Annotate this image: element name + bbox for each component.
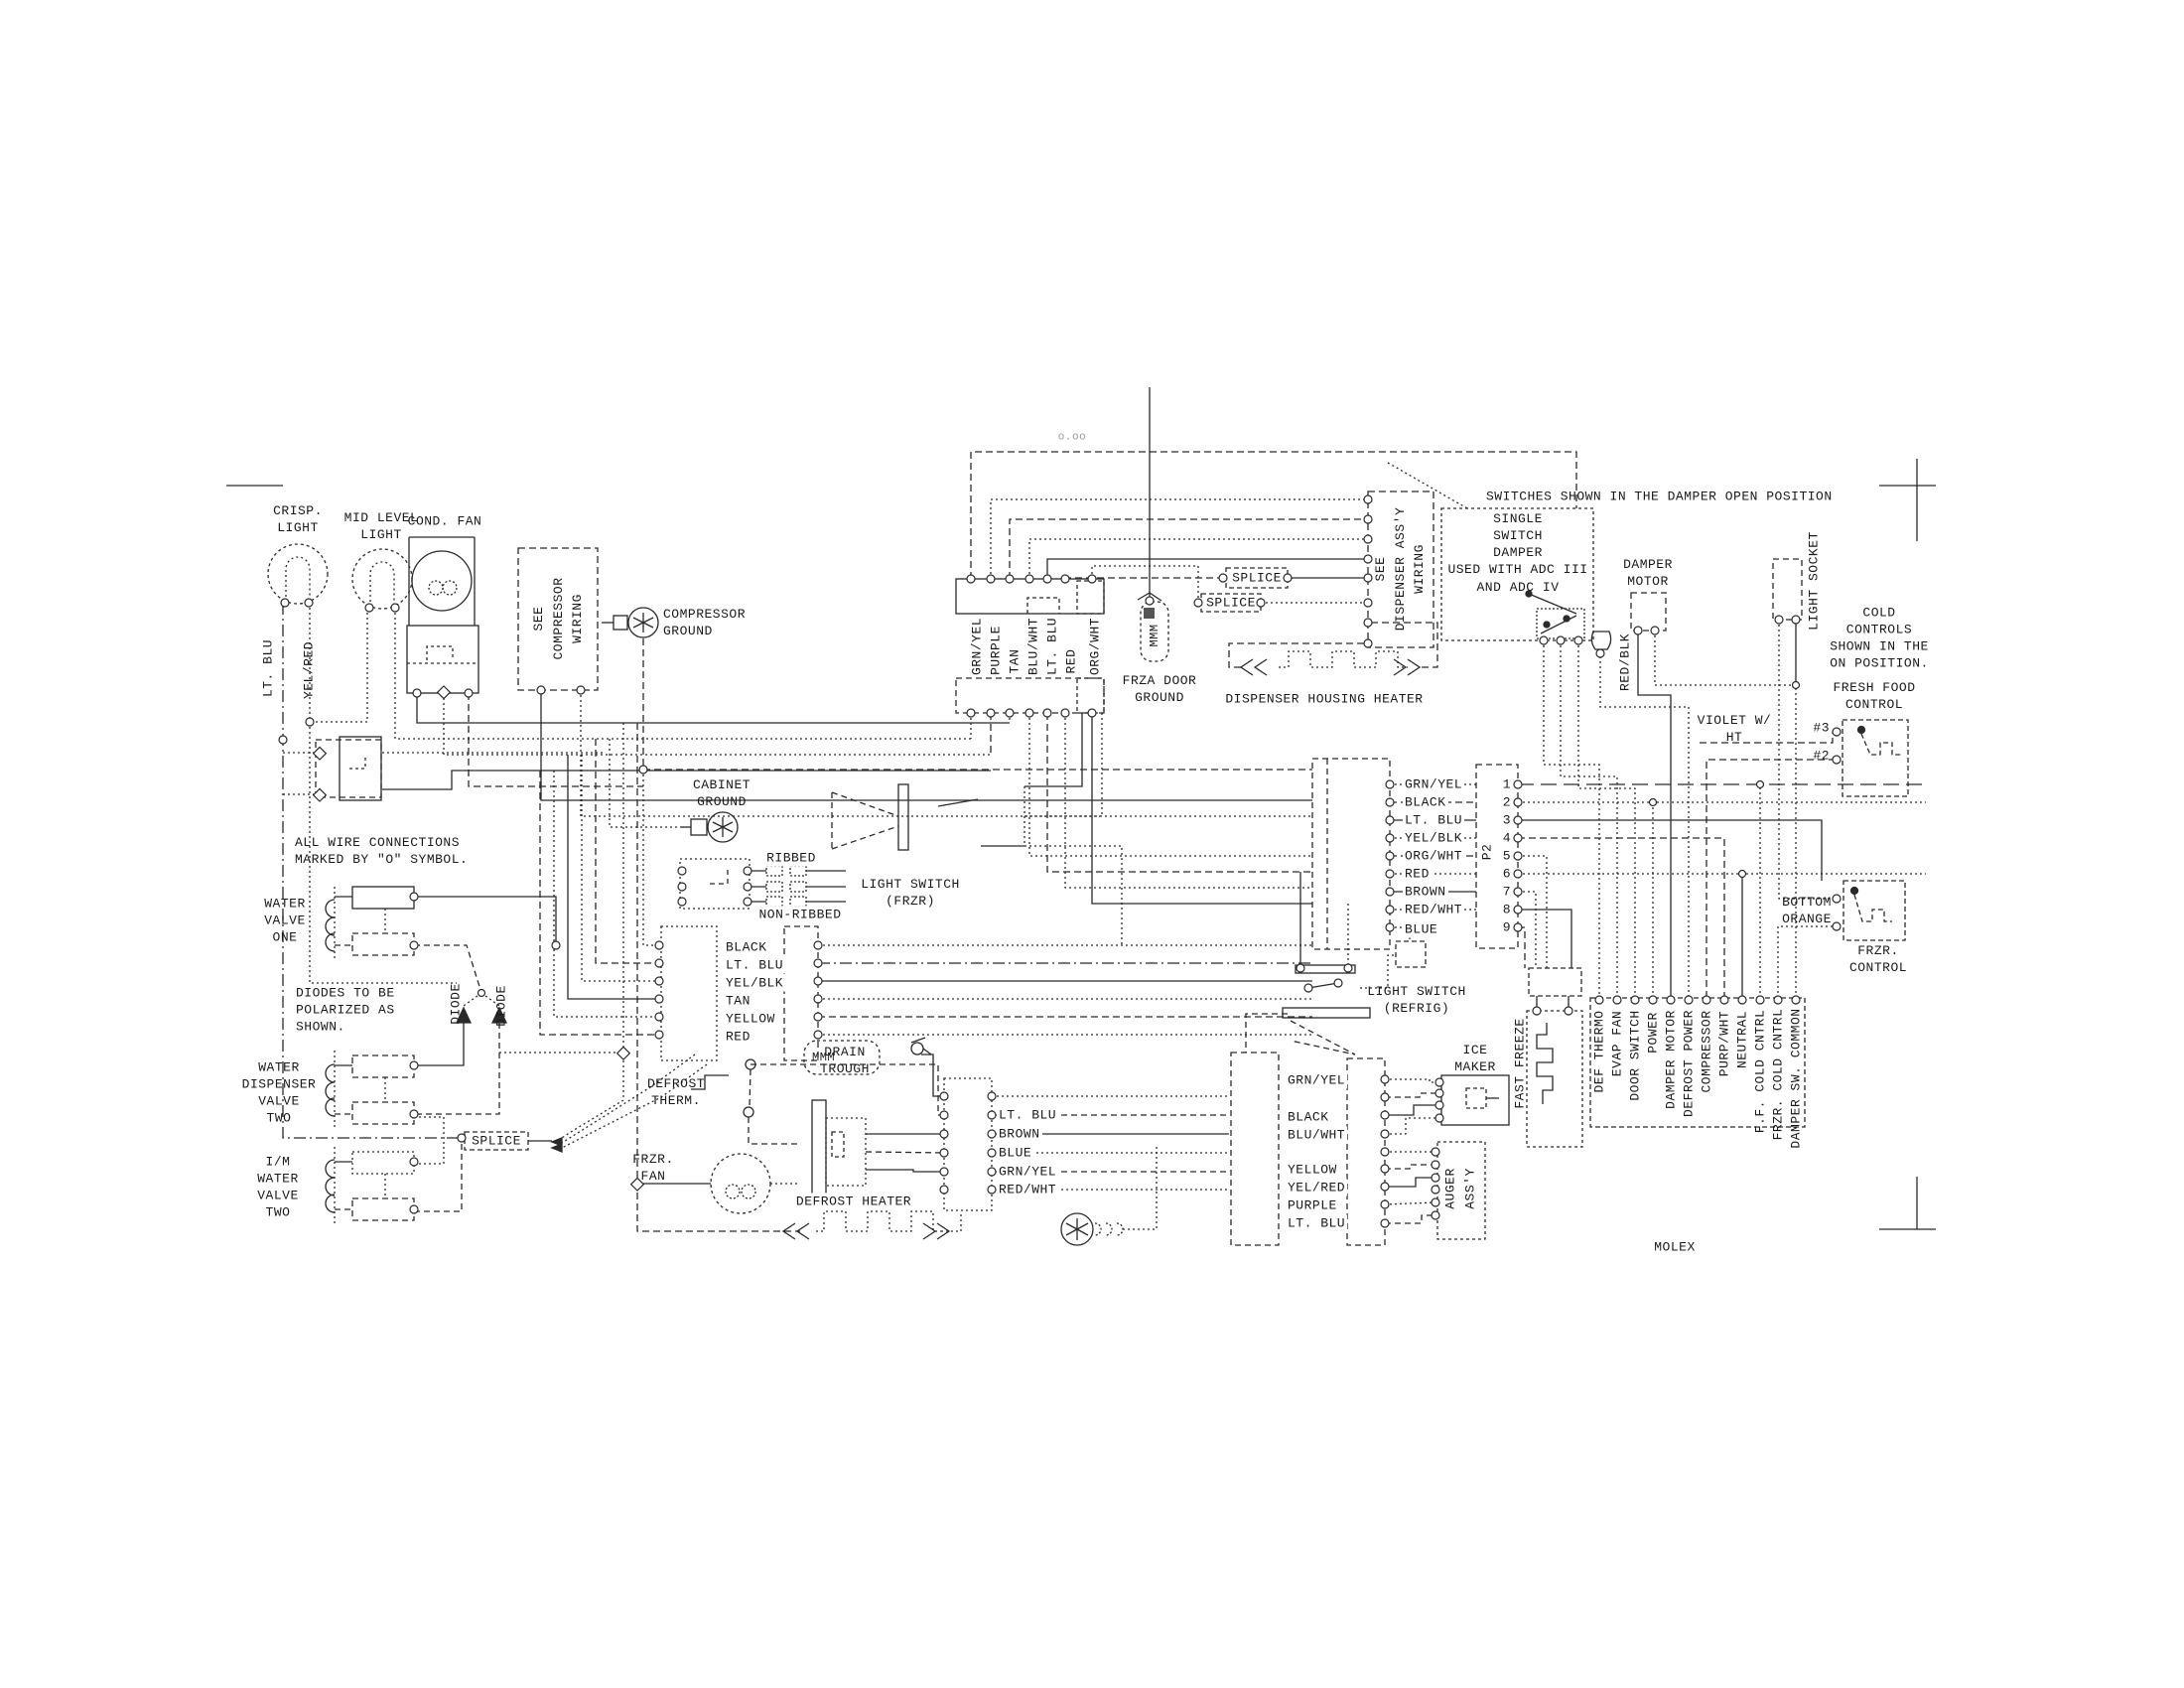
- light-switch-refrig-label: LIGHT SWITCH (REFRIG): [1367, 983, 1466, 1017]
- auger-assy-label: AUGER ASS'Y: [1441, 1168, 1480, 1209]
- p2-wire-7: RED/WHT: [1403, 901, 1464, 917]
- cabinet-ground-label: CABINET GROUND: [693, 776, 751, 810]
- violet-w-ht-label: VIOLET W/ HT: [1698, 712, 1772, 746]
- ff-terminal-2-label: #2: [1813, 747, 1830, 764]
- p2-pin-5: 5: [1503, 847, 1511, 864]
- ice-maker-label: ICE MAKER: [1454, 1042, 1496, 1075]
- splice-top-2-label: SPLICE: [1206, 594, 1256, 611]
- ff-terminal-3-label: #3: [1813, 719, 1830, 736]
- harness-label-frzr-cold-cntrl: FRZR. COLD CNTRL: [1768, 1009, 1788, 1141]
- harness-label-power: POWER: [1643, 1012, 1663, 1054]
- harness-label-neutral: NEUTRAL: [1732, 1011, 1752, 1068]
- harness-label-door-switch: DOOR SWITCH: [1625, 1010, 1645, 1100]
- cabinet-harness-wire-3: TAN: [724, 992, 752, 1009]
- cond-fan-label: COND. FAN: [408, 512, 482, 529]
- faint-top-text: o.oo: [1058, 431, 1086, 446]
- harness-label-damper-sw-common: DAMPER SW. COMMON: [1786, 1008, 1806, 1148]
- frzr-fan-label: FRZR. FAN: [632, 1151, 674, 1185]
- harness-label-def-thermo: DEF THERMO: [1589, 1010, 1609, 1092]
- damper-open-note: SWITCHES SHOWN IN THE DAMPER OPEN POSITI…: [1486, 488, 1833, 504]
- diode-label-2: DIODE: [491, 985, 511, 1027]
- ribbed-label: RIBBED: [764, 849, 818, 866]
- icemaker-harness-wire-3: YELLOW: [1286, 1161, 1339, 1178]
- splice-left-label: SPLICE: [472, 1132, 521, 1149]
- p2-wire-2: LT. BLU: [1403, 811, 1464, 828]
- cabinet-harness-wire-4: YELLOW: [724, 1010, 777, 1027]
- icemaker-harness-wire-6: LT. BLU: [1286, 1214, 1347, 1231]
- freezer-harness-wire-3: GRN/YEL: [997, 1163, 1058, 1180]
- freezer-harness-wire-1: BROWN: [997, 1125, 1042, 1142]
- water-valve-one-label: WATER VALVE ONE: [264, 895, 306, 945]
- light-switch-frzr-label: LIGHT SWITCH (FRZR): [861, 876, 960, 910]
- harness-label-damper-motor: DAMPER MOTOR: [1661, 1010, 1681, 1109]
- p2-wire-6: BROWN: [1403, 883, 1448, 900]
- p2-wire-0: GRN/YEL: [1403, 775, 1464, 792]
- p2-wire-1: BLACK: [1403, 793, 1448, 810]
- door-harness-wire-1: PURPLE: [986, 624, 1006, 677]
- cabinet-harness-wire-5: RED: [724, 1028, 752, 1045]
- lt-blu-wire-label: LT. BLU: [258, 639, 278, 697]
- harness-label-purp-wht: PURP/WHT: [1714, 1011, 1734, 1076]
- cabinet-harness-wire-2: YEL/BLK: [724, 974, 785, 991]
- icemaker-harness-wire-2: BLU/WHT: [1286, 1126, 1347, 1143]
- icemaker-harness-wire-1: BLACK: [1286, 1108, 1331, 1125]
- p2-pin-4: 4: [1503, 829, 1511, 846]
- door-harness-wire-2: TAN: [1005, 647, 1024, 676]
- p2-wire-4: ORG/WHT: [1403, 847, 1464, 864]
- door-harness-wire-3: BLU/WHT: [1024, 616, 1043, 677]
- defrost-heater-label: DEFROST HEATER: [794, 1193, 913, 1209]
- p2-pin-2: 2: [1503, 793, 1511, 810]
- damper-motor-label: DAMPER MOTOR: [1623, 556, 1673, 590]
- p2-pin-3: 3: [1503, 811, 1511, 828]
- harness-label-defrost-power: DEFROST POWER: [1679, 1010, 1699, 1117]
- icemaker-harness-wire-5: PURPLE: [1286, 1196, 1339, 1213]
- splice-top-1-label: SPLICE: [1232, 569, 1282, 586]
- all-wire-note: ALL WIRE CONNECTIONS MARKED BY "O" SYMBO…: [295, 834, 468, 868]
- icemaker-harness-wire-0: GRN/YEL: [1286, 1071, 1347, 1088]
- cabinet-harness-wire-0: BLACK: [724, 938, 769, 955]
- im-water-valve-two-label: I/M WATER VALVE TWO: [257, 1154, 299, 1222]
- fast-freeze-label: FAST FREEZE: [1510, 1018, 1530, 1108]
- p2-wire-8: BLUE: [1403, 920, 1439, 937]
- crisp-light-label: CRISP. LIGHT: [273, 502, 323, 536]
- p2-pin-6: 6: [1503, 865, 1511, 882]
- cabinet-harness-wire-1: LT. BLU: [724, 956, 785, 973]
- freezer-harness-wire-4: RED/WHT: [997, 1181, 1058, 1197]
- door-harness-wire-4: LT. BLU: [1042, 616, 1062, 677]
- frza-door-ground-label: FRZA DOOR GROUND: [1123, 672, 1197, 706]
- door-harness-wire-6: ORG/WHT: [1085, 616, 1105, 677]
- wiring-diagram-page: CRISP. LIGHT MID LEVEL LIGHT COND. FAN S…: [0, 0, 2184, 1688]
- harness-label-evap-fan: EVAP FAN: [1607, 1011, 1627, 1076]
- p2-pin-9: 9: [1503, 918, 1511, 935]
- p2-wire-3: YEL/BLK: [1403, 829, 1464, 846]
- compressor-ground-label: COMPRESSOR GROUND: [663, 606, 746, 639]
- water-dispenser-valve-two-label: WATER DISPENSER VALVE TWO: [242, 1059, 317, 1128]
- frza-door-heater-mmm: MMM: [1146, 624, 1163, 646]
- dispenser-housing-heater-label: DISPENSER HOUSING HEATER: [1225, 690, 1423, 707]
- freezer-harness-wire-0: LT. BLU: [997, 1106, 1058, 1123]
- cold-controls-note: COLD CONTROLS SHOWN IN THE ON POSITION.: [1830, 605, 1929, 673]
- drain-trough-heater-mmm: MMM: [812, 1051, 835, 1066]
- door-harness-wire-0: GRN/YEL: [967, 616, 987, 677]
- harness-label-compressor: COMPRESSOR: [1697, 1010, 1716, 1092]
- p2-pin-1: 1: [1503, 775, 1511, 792]
- red-blk-wire-label: RED/BLK: [1615, 633, 1635, 691]
- defrost-therm-label: DEFROST THERM.: [647, 1075, 705, 1109]
- fresh-food-control-label: FRESH FOOD CONTROL: [1833, 679, 1915, 713]
- icemaker-harness-wire-4: YEL/RED: [1286, 1179, 1347, 1196]
- single-switch-damper-note: SINGLE SWITCH DAMPER USED WITH ADC III A…: [1447, 510, 1587, 596]
- diode-label-1: DIODE: [446, 983, 466, 1025]
- frzr-control-label: FRZR. CONTROL: [1849, 942, 1907, 976]
- p2-pin-7: 7: [1503, 883, 1511, 900]
- diodes-note: DIODES TO BE POLARIZED AS SHOWN.: [296, 984, 395, 1035]
- see-compressor-wiring-label: SEE COMPRESSOR WIRING: [529, 577, 588, 659]
- yel-red-wire-label: YEL/RED: [299, 641, 319, 699]
- p2-wire-5: RED: [1403, 865, 1432, 882]
- see-dispenser-assy-wiring-label: SEE DISPENSER ASS'Y WIRING: [1371, 507, 1430, 632]
- bottom-orange-label: BOTTOM ORANGE: [1782, 894, 1832, 927]
- freezer-harness-wire-2: BLUE: [997, 1144, 1033, 1161]
- door-harness-wire-5: RED: [1061, 647, 1081, 676]
- molex-label: MOLEX: [1654, 1238, 1696, 1255]
- p2-connector-name: P2: [1477, 844, 1497, 861]
- p2-pin-8: 8: [1503, 901, 1511, 917]
- harness-label-ff-cold-cntrl: F.F. COLD CNTRL: [1750, 1010, 1770, 1134]
- light-socket-label: LIGHT SOCKET: [1804, 531, 1824, 631]
- non-ribbed-label: NON-RIBBED: [756, 906, 843, 922]
